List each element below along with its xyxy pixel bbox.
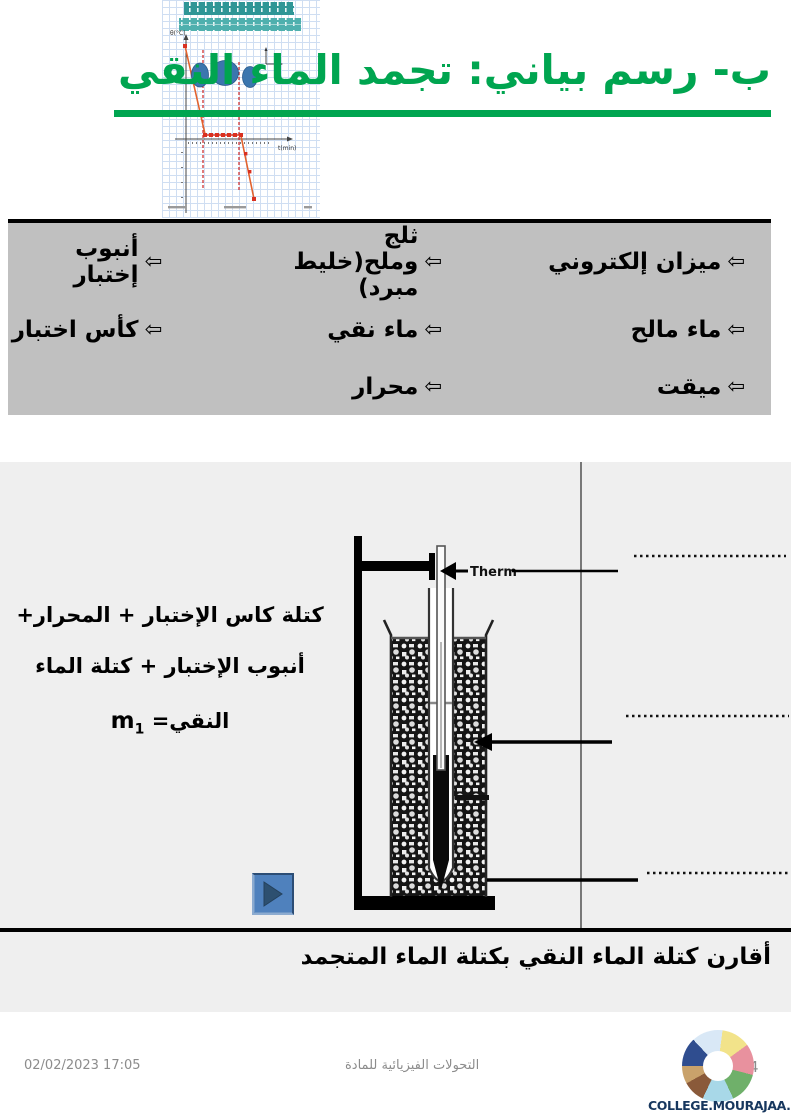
level-marker (455, 795, 489, 800)
material-item: ⇦ ميقت (504, 358, 771, 415)
material-label: أنبوب إختبار (8, 236, 139, 288)
thumbnail-ylabel: θ(°C) (170, 30, 186, 37)
thumbnail-data-table (179, 2, 301, 31)
compare-statement: أقارن كتلة الماء النقي بكتلة الماء المتج… (301, 944, 771, 970)
material-label: ماء نقي (327, 317, 418, 343)
material-item: ⇦ محرار (252, 358, 504, 415)
section-divider (0, 928, 791, 932)
item-arrow-icon: ⇦ (424, 374, 442, 398)
next-button[interactable] (252, 873, 294, 915)
item-arrow-icon: ⇦ (727, 249, 745, 273)
material-label: ماء مالح (631, 317, 722, 343)
material-item: ⇦ ماء نقي (252, 301, 504, 358)
slide-title: ب- رسم بياني: تجمد الماء النقي (114, 38, 771, 117)
material-label: ميزان إلكتروني (548, 249, 721, 275)
play-triangle-icon (260, 880, 286, 908)
material-item: ⇦ ماء مالح (504, 301, 771, 358)
mass-equation-text: كتلة كاس الإختبار + المحرار+ أنبوب الإخت… (16, 590, 324, 749)
thermometer (437, 546, 445, 770)
material-label: ثلج وملح(خليط مبرد) (252, 223, 418, 301)
experiment-section: Therm كتلة كاس الإختبار + المحرار+ أنبوب… (0, 462, 791, 1012)
mass-line-1: كتلة كاس الإختبار + المحرار+ (16, 603, 323, 627)
thumbnail-xlabel: t(min) (278, 145, 296, 152)
item-arrow-icon: ⇦ (145, 249, 163, 273)
material-item: ⇦ ثلج وملح(خليط مبرد) (252, 223, 504, 301)
item-arrow-icon: ⇦ (424, 317, 442, 341)
material-item: ⇦ ميزان إلكتروني (504, 223, 771, 301)
item-arrow-icon: ⇦ (424, 249, 442, 273)
callout-arrow-thermometer: Therm (440, 562, 618, 580)
mass-line-3: النقي= m1 (111, 709, 230, 733)
logo-center (703, 1051, 733, 1081)
footer-datetime: 02/02/2023 17:05 (24, 1058, 141, 1073)
material-label: ميقت (657, 374, 722, 400)
material-item-empty (8, 358, 252, 415)
footer-course-title: التحولات الفيزيائية للمادة (345, 1058, 479, 1073)
material-item: ⇦ أنبوب إختبار (8, 223, 252, 301)
thermometer-label: Therm (470, 565, 517, 580)
material-label: كأس اختبار (12, 317, 139, 343)
site-url[interactable]: COLLEGE.MOURAJAA.COM (648, 1098, 790, 1113)
materials-table: ⇦ ميزان إلكتروني ⇦ ثلج وملح(خليط مبرد) ⇦… (8, 219, 771, 415)
material-item: ⇦ كأس اختبار (8, 301, 252, 358)
item-arrow-icon: ⇦ (727, 374, 745, 398)
thumbnail-footer-marks (168, 206, 312, 208)
callout-arrow-mixture (474, 733, 612, 751)
item-arrow-icon: ⇦ (145, 317, 163, 341)
item-arrow-icon: ⇦ (727, 317, 745, 341)
material-label: محرار (352, 374, 418, 400)
dotted-answer-lines (626, 556, 789, 873)
slide-page: θ(°C) t(min) (0, 0, 791, 1117)
site-logo (682, 1030, 754, 1102)
mass-line-2: أنبوب الإختبار + كتلة الماء (35, 654, 305, 678)
